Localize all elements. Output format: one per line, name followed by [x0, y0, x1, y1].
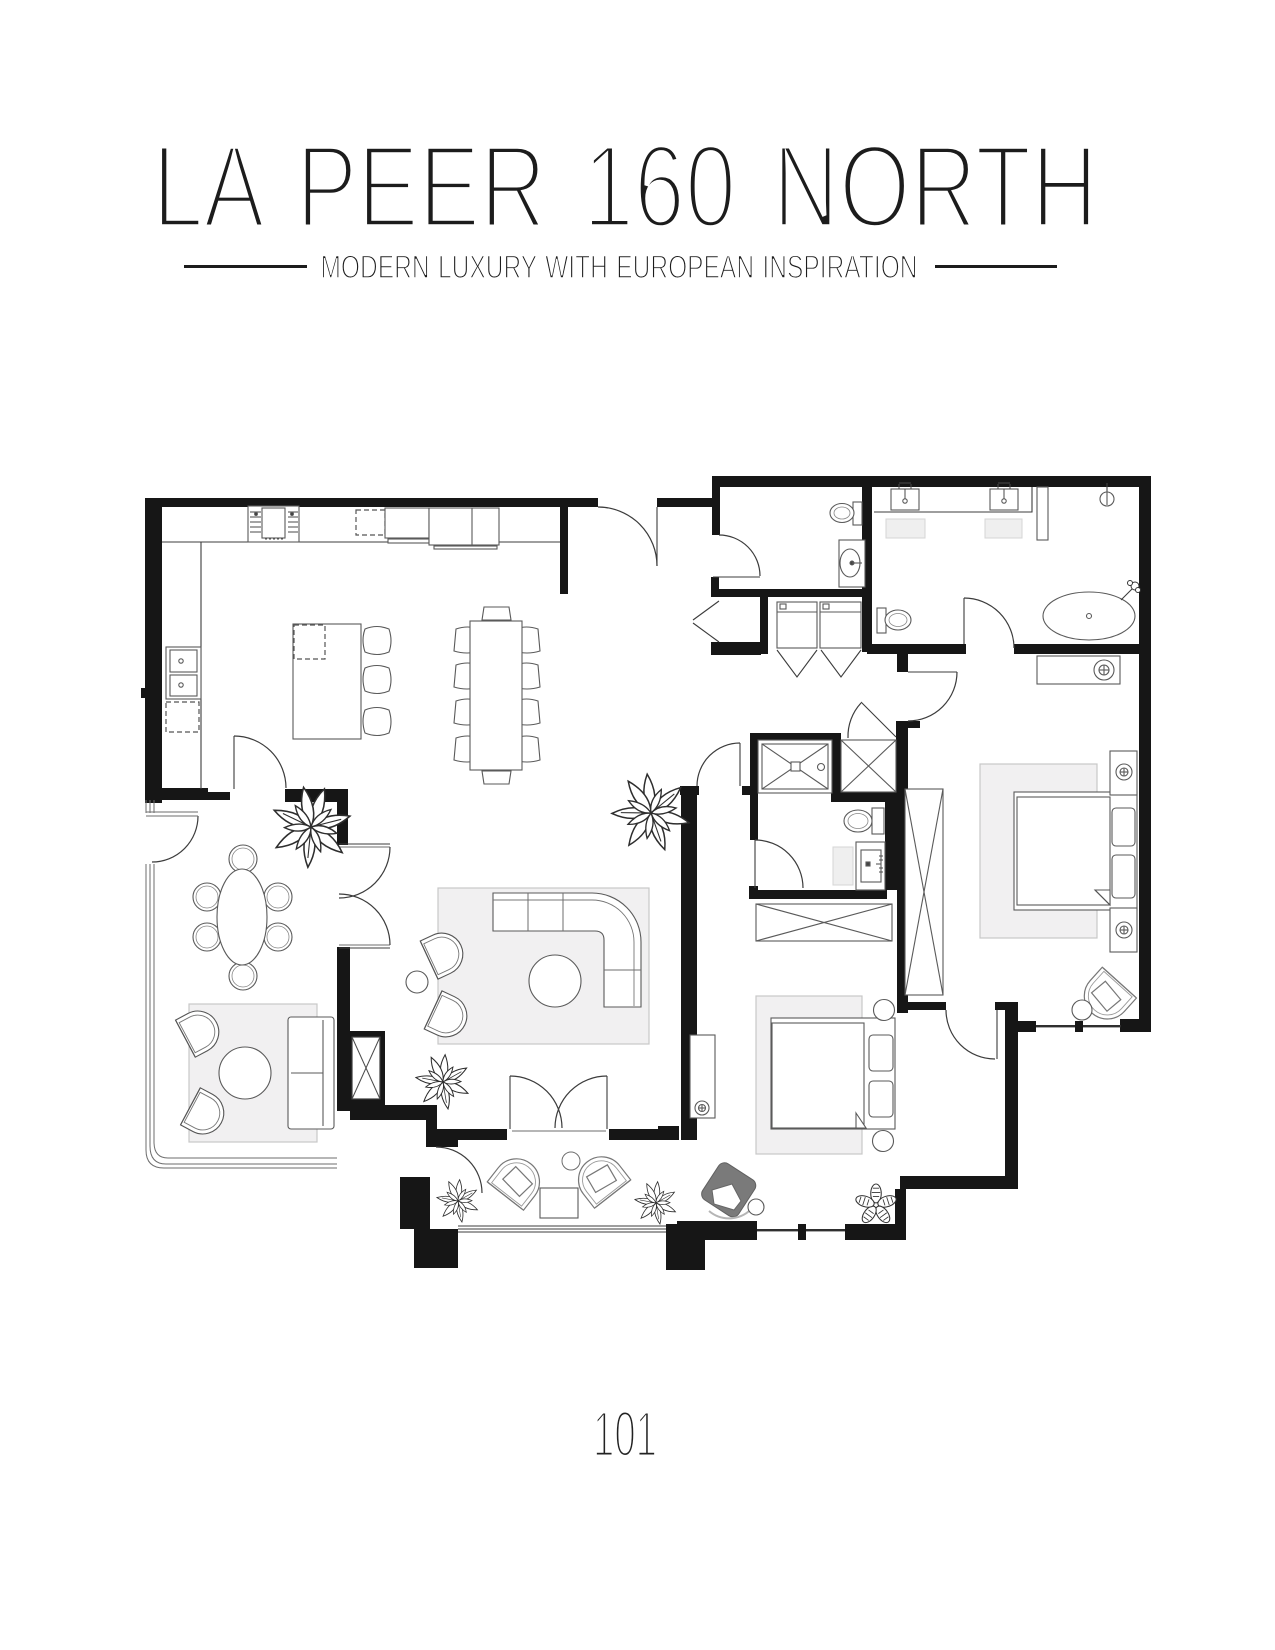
svg-text:LA PEER 160 NORTH: LA PEER 160 NORTH [152, 121, 1097, 253]
svg-text:101: 101 [593, 1398, 657, 1470]
svg-text:MODERN LUXURY WITH EUROPEAN IN: MODERN LUXURY WITH EUROPEAN INSPIRATION [320, 250, 917, 286]
